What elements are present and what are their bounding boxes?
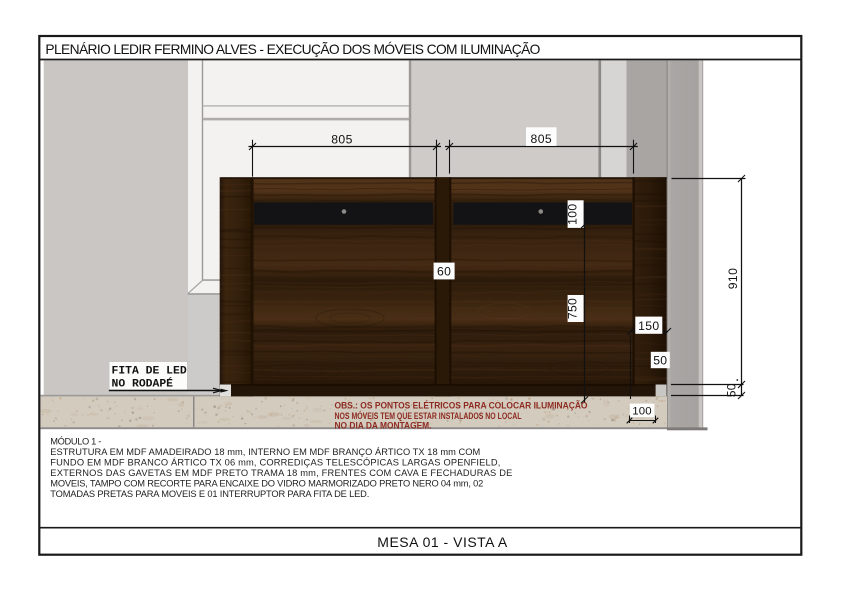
svg-text:MOVEIS, TAMPO COM RECORTE P: MOVEIS, TAMPO COM RECORTE PARA ENCAIXE D… [50,478,483,488]
svg-text:NO RODAPÉ: NO RODAPÉ [112,376,174,390]
svg-text:FUNDO EM MDF BRANCO ÁRTICO TX: FUNDO EM MDF BRANCO ÁRTICO TX 06 mm, COR… [50,457,500,467]
svg-text:PLENÁRIO LEDIR FERMINO ALVES: PLENÁRIO LEDIR FERMINO ALVES - EXECUÇÃO … [45,41,540,57]
svg-text:750: 750 [566,298,580,319]
svg-text:100: 100 [632,406,652,418]
svg-text:OBS.: OS PONTOS ELÉTRICOS PAR: OBS.: OS PONTOS ELÉTRICOS PARA COLOCAR I… [335,400,588,410]
svg-text:805: 805 [331,132,353,146]
svg-text:100: 100 [566,204,580,225]
svg-text:TOMADAS PRETAS PARA MOVEIS: TOMADAS PRETAS PARA MOVEIS E 01 INTERRUP… [50,489,369,499]
svg-text:60: 60 [437,265,451,279]
svg-text:NO DIA DA MONTAGEM.: NO DIA DA MONTAGEM. [335,420,432,430]
svg-text:910: 910 [726,268,740,290]
svg-text:EXTERNOS DAS GAVETAS EM MD: EXTERNOS DAS GAVETAS EM MDF PRETO TRAMA … [50,468,512,478]
svg-text:150: 150 [638,319,659,333]
svg-text:FITA DE LED: FITA DE LED [112,365,187,377]
svg-text:MESA 01 - VISTA A: MESA 01 - VISTA A [377,534,508,550]
svg-text:50: 50 [653,354,667,368]
svg-text:805: 805 [531,132,553,146]
svg-text:MÓDULO 1 -: MÓDULO 1 - [50,436,101,446]
svg-text:50: 50 [725,383,739,397]
svg-text:ESTRUTURA EM MDF AMADEIRADO 18: ESTRUTURA EM MDF AMADEIRADO 18 mm, INTER… [50,447,480,457]
svg-text:NOS MÓVEIS TEM QUE ESTAR INST: NOS MÓVEIS TEM QUE ESTAR INSTALADOS NO L… [335,410,522,421]
